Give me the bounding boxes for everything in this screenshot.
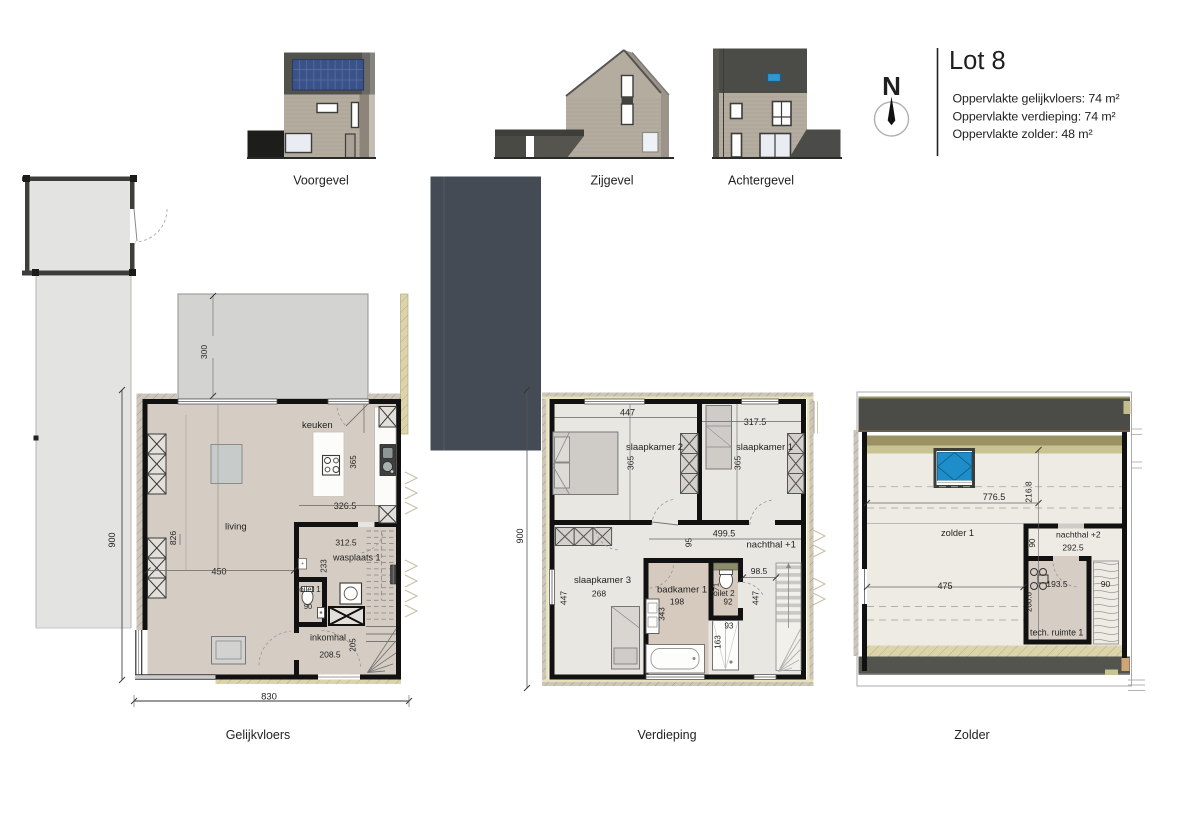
svg-text:Zijgevel: Zijgevel bbox=[590, 174, 633, 188]
svg-text:776.5: 776.5 bbox=[983, 492, 1006, 502]
svg-text:98.5: 98.5 bbox=[751, 566, 768, 576]
svg-text:216.8: 216.8 bbox=[1024, 481, 1034, 503]
svg-text:317.5: 317.5 bbox=[744, 417, 767, 427]
svg-text:keuken: keuken bbox=[302, 420, 333, 431]
svg-text:Verdieping: Verdieping bbox=[637, 728, 696, 742]
svg-text:slaapkamer 2: slaapkamer 2 bbox=[626, 442, 683, 453]
svg-text:312.5: 312.5 bbox=[335, 538, 357, 548]
svg-text:268: 268 bbox=[592, 589, 606, 599]
svg-text:900: 900 bbox=[515, 528, 525, 543]
svg-text:Achtergevel: Achtergevel bbox=[728, 174, 794, 188]
svg-text:Oppervlakte verdieping: 74 m²: Oppervlakte verdieping: 74 m² bbox=[953, 110, 1116, 124]
svg-text:193.5: 193.5 bbox=[1046, 579, 1068, 589]
svg-text:nachthal +2: nachthal +2 bbox=[1056, 530, 1101, 540]
svg-text:badkamer 1: badkamer 1 bbox=[657, 585, 707, 596]
svg-text:90: 90 bbox=[1101, 579, 1111, 589]
svg-text:inkomhal: inkomhal bbox=[310, 633, 346, 643]
svg-text:260.6: 260.6 bbox=[1025, 591, 1034, 612]
svg-text:365: 365 bbox=[349, 455, 358, 469]
svg-text:nachthal +1: nachthal +1 bbox=[747, 540, 796, 551]
svg-text:Oppervlakte zolder: 48 m²: Oppervlakte zolder: 48 m² bbox=[953, 127, 1093, 141]
svg-text:90: 90 bbox=[1028, 538, 1037, 547]
svg-text:826: 826 bbox=[168, 531, 178, 545]
svg-text:wasplaats 1: wasplaats 1 bbox=[332, 553, 381, 563]
svg-text:Zolder: Zolder bbox=[954, 728, 989, 742]
svg-text:475: 475 bbox=[937, 581, 952, 591]
svg-text:208.5: 208.5 bbox=[319, 650, 341, 660]
svg-text:365: 365 bbox=[626, 456, 636, 470]
svg-text:toilet 1: toilet 1 bbox=[297, 585, 321, 594]
svg-text:92: 92 bbox=[724, 598, 733, 607]
svg-text:205: 205 bbox=[349, 638, 358, 652]
svg-text:447: 447 bbox=[620, 408, 635, 418]
svg-text:447: 447 bbox=[559, 591, 569, 605]
svg-text:163: 163 bbox=[714, 635, 723, 649]
svg-text:450: 450 bbox=[211, 567, 226, 577]
svg-text:living: living bbox=[225, 522, 247, 533]
svg-text:tech. ruimte 1: tech. ruimte 1 bbox=[1030, 628, 1083, 638]
svg-text:900: 900 bbox=[107, 532, 117, 547]
svg-text:slaapkamer 1: slaapkamer 1 bbox=[736, 442, 793, 453]
svg-text:71: 71 bbox=[712, 583, 721, 591]
svg-text:447: 447 bbox=[751, 591, 761, 605]
svg-text:Lot 8: Lot 8 bbox=[949, 47, 1006, 75]
svg-text:343: 343 bbox=[658, 607, 667, 621]
svg-text:233: 233 bbox=[320, 559, 329, 573]
svg-text:slaapkamer 3: slaapkamer 3 bbox=[574, 575, 631, 586]
svg-text:zolder 1: zolder 1 bbox=[941, 528, 974, 538]
svg-text:Gelijkvloers: Gelijkvloers bbox=[226, 728, 291, 742]
svg-text:90: 90 bbox=[304, 602, 312, 611]
svg-text:198: 198 bbox=[670, 597, 684, 607]
svg-text:499.5: 499.5 bbox=[713, 529, 736, 539]
svg-text:93: 93 bbox=[725, 622, 734, 631]
svg-text:Voorgevel: Voorgevel bbox=[293, 174, 349, 188]
svg-text:300: 300 bbox=[199, 345, 209, 359]
svg-text:365: 365 bbox=[733, 456, 743, 470]
svg-text:292.5: 292.5 bbox=[1062, 543, 1084, 553]
svg-text:326.5: 326.5 bbox=[334, 501, 357, 511]
svg-text:Oppervlakte gelijkvloers: 74 m: Oppervlakte gelijkvloers: 74 m² bbox=[953, 92, 1120, 106]
